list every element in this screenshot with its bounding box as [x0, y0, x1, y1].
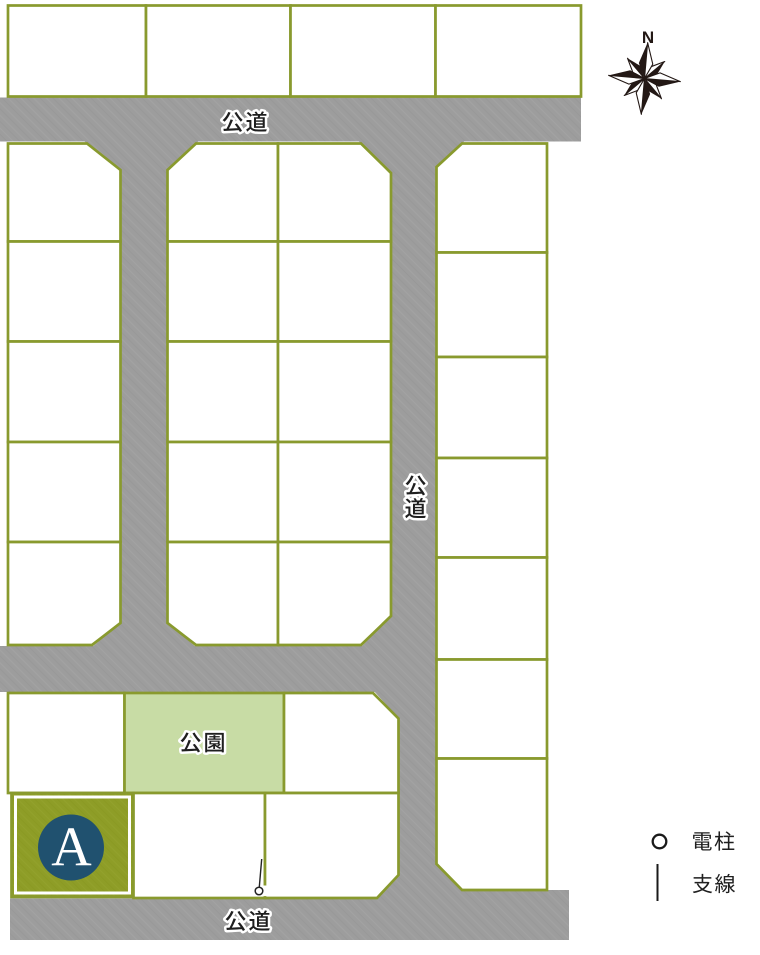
- svg-text:A: A: [51, 817, 92, 879]
- svg-text:N: N: [642, 28, 654, 47]
